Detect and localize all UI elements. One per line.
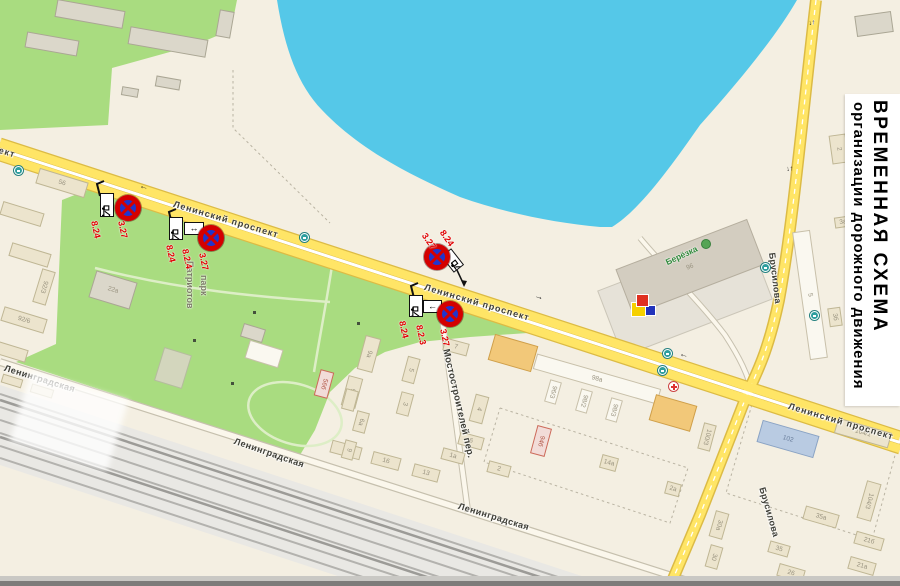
parcel-outline [484,408,688,523]
park-bench-icon [253,311,256,314]
building: 96/3 [545,380,562,404]
road-direction-arrow: ↓↑ [808,19,816,27]
no-stopping-sign-3-27-icon [198,225,224,251]
building: 5 [402,356,420,383]
building: 4 [469,394,489,423]
building: 3 [396,392,413,416]
temporary-scheme-banner: ВРЕМЕННАЯ СХЕМА организации дорожного дв… [845,94,900,406]
building: 30 [705,545,723,569]
tow-truck-plate-8-24-icon [100,193,114,217]
bus-stop-icon [761,263,770,272]
building: 100/3 [698,423,716,451]
bus-stop-icon [14,166,23,175]
brand-logo-square-icon [637,295,648,306]
zone-arrow-glyph: ← [428,302,437,311]
no-stopping-sign-3-27-icon [437,301,463,327]
building [121,87,138,98]
medical-cross-icon [668,381,679,392]
building: 5 [793,230,828,359]
building [649,395,697,432]
building: 35а [803,506,839,528]
building [9,243,51,267]
building [155,76,180,90]
building [488,334,537,371]
building [0,202,44,227]
bus-stop-icon [663,349,672,358]
brand-logo-square-icon [646,306,655,315]
building: 13 [412,464,440,482]
zone-arrow-glyph: ↔ [190,224,199,233]
building: 21а [848,557,876,576]
building: 35 [768,541,790,557]
building: 98/3 [606,398,623,422]
lake-water [277,0,797,227]
tow-truck-glyph [411,306,421,317]
park-bench-icon [231,382,234,385]
sign-leader-arrowhead [461,280,467,287]
building [0,342,28,362]
bus-stop-icon [810,311,819,320]
bus-stop-icon [300,233,309,242]
map-root[interactable]: 5692/392/622а9а9в531816137461а256б6а998а… [0,0,900,586]
tow-truck-plate-8-24-icon [169,217,183,240]
park-bench-icon [193,339,196,342]
no-stopping-sign-3-27-icon [115,195,141,221]
building [342,389,359,411]
building: 104/3 [857,481,881,521]
tow-truck-plate-8-24-icon [409,295,423,317]
building: 92/3 [33,269,55,305]
building: 30а [709,511,729,540]
building: 14а [600,455,619,472]
bottom-edge-strip-dark [0,581,900,586]
building: 2а [665,481,682,496]
tree-icon [701,239,711,249]
park-bench-icon [357,322,360,325]
banner-title: ВРЕМЕННАЯ СХЕМА [868,100,890,333]
building: 102 [757,420,819,457]
building: 98/2 [576,389,593,413]
building: 21б [854,531,884,550]
banner-subtitle: организации дорожного движения [850,102,867,389]
tow-truck-glyph [171,229,181,241]
building-number: 3б [831,313,840,322]
building [855,12,893,37]
building: 2 [487,461,511,477]
road-direction-arrow: ↓↑ [786,165,794,173]
building: 3б [828,307,842,326]
building: 92/6 [1,307,47,333]
tow-truck-glyph [102,205,112,217]
building: 6а [353,411,370,433]
building: 94б [531,426,552,457]
building: 16 [371,452,401,471]
poi-name-label: парк [199,275,209,295]
bus-stop-icon [658,366,667,375]
